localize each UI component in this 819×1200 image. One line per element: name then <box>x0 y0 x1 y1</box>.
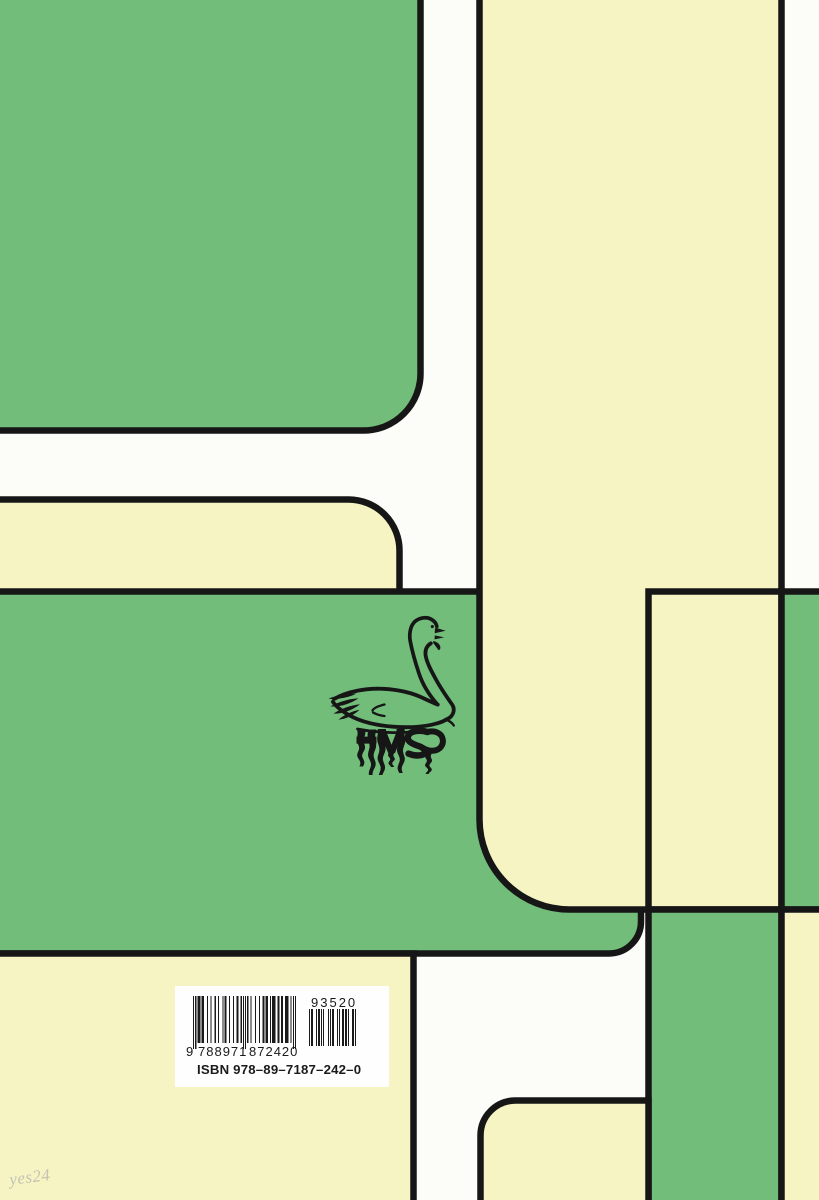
svg-text:93520: 93520 <box>311 995 357 1010</box>
svg-text:ISBN 978–89–7187–242–0: ISBN 978–89–7187–242–0 <box>197 1062 361 1077</box>
svg-text:872420: 872420 <box>249 1044 298 1059</box>
svg-text:788971: 788971 <box>198 1044 247 1059</box>
svg-text:9: 9 <box>186 1044 193 1059</box>
